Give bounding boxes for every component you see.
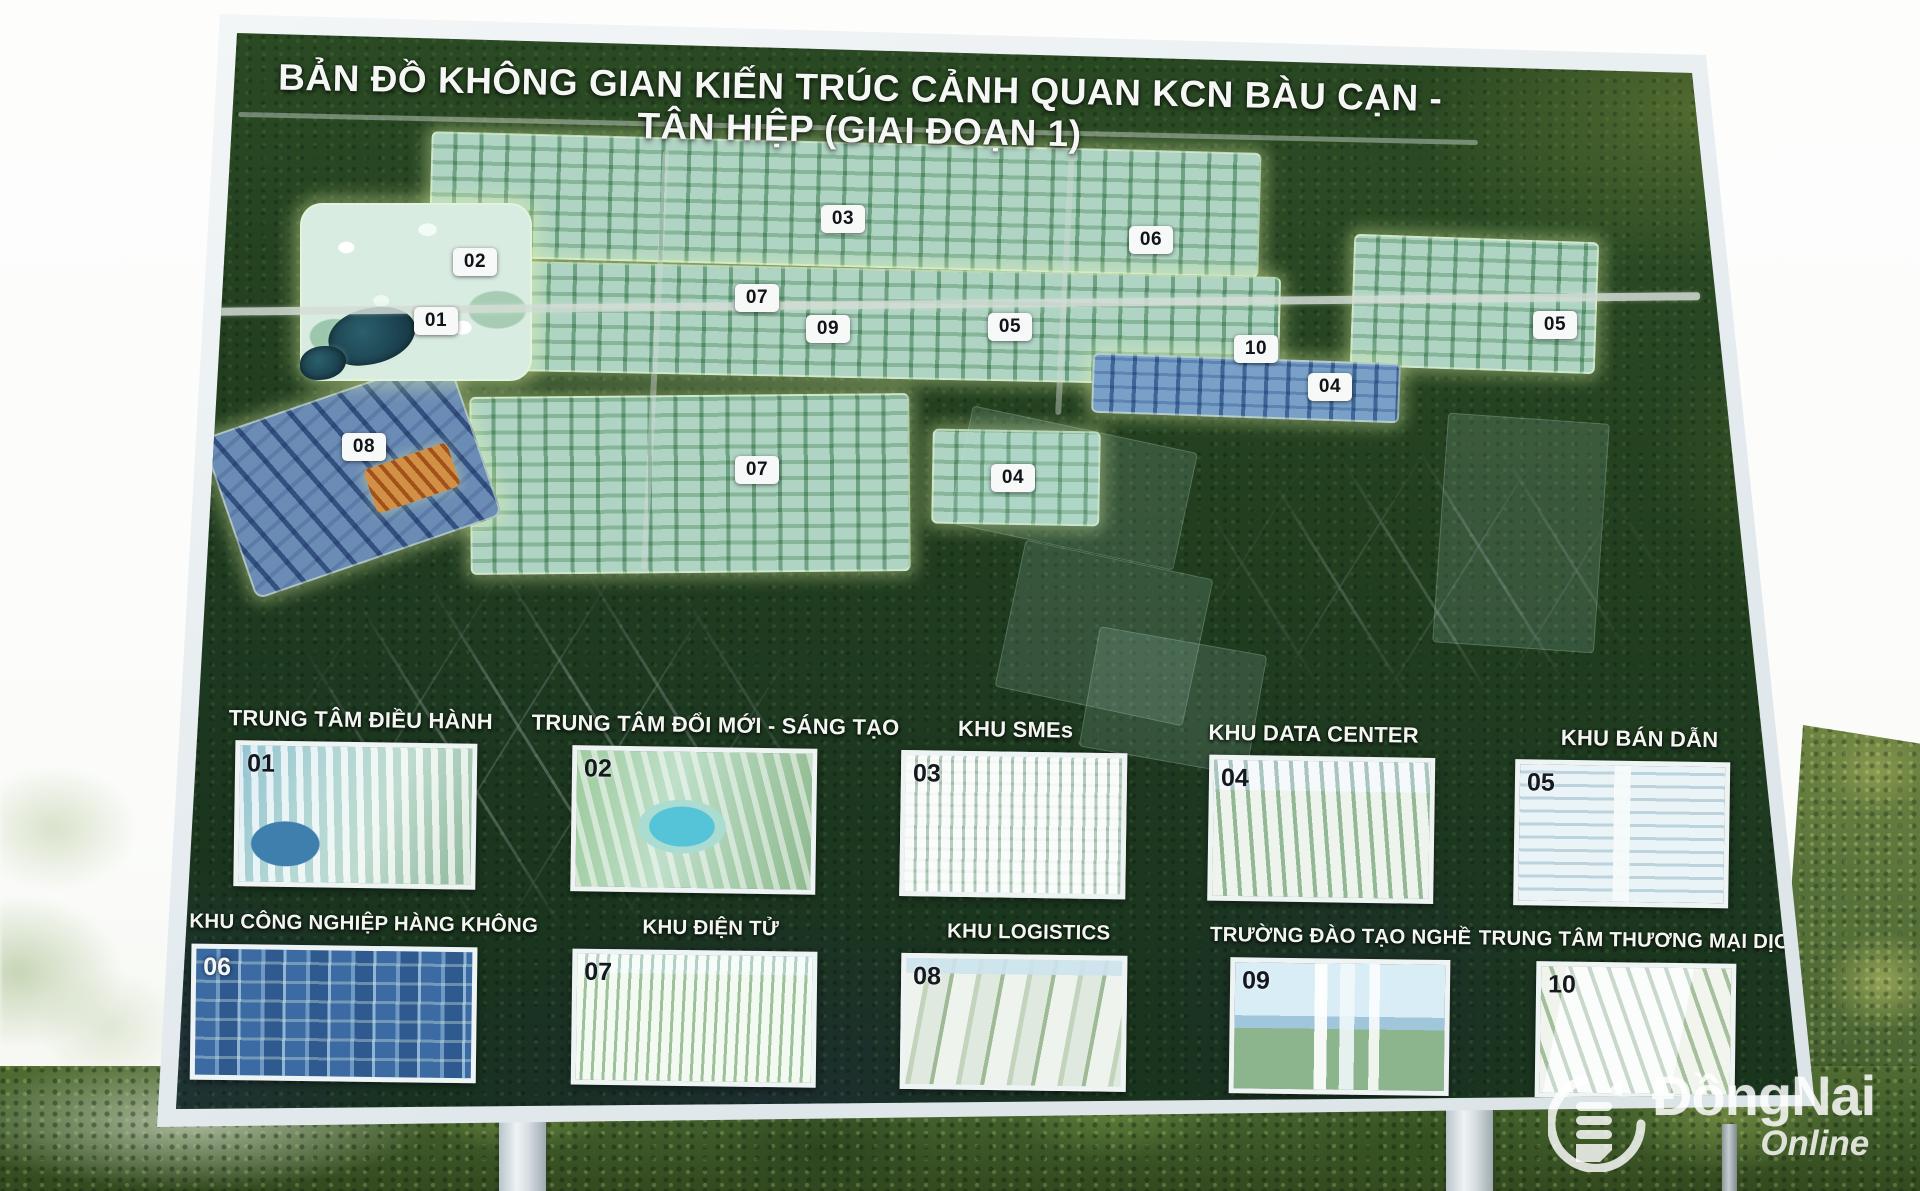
zone-label-02: TRUNG TÂM ĐỔI MỚI - SÁNG TẠO	[531, 707, 881, 744]
zone-thumb-number: 03	[913, 759, 941, 788]
zone-thumb-08: 08	[900, 953, 1128, 1092]
zone-thumb-number: 09	[1242, 966, 1270, 995]
map-marker-04: 04	[1308, 373, 1352, 401]
dongnai-logo-icon	[1548, 1072, 1648, 1172]
map-marker-10: 10	[1234, 335, 1278, 363]
map-marker-06: 06	[1129, 226, 1173, 254]
zone-thumb-number: 01	[247, 749, 275, 778]
zone-thumb-09: 09	[1229, 957, 1451, 1096]
dongnai-logo-text: ĐồngNai Online	[1652, 1068, 1875, 1161]
zone-thumb-number: 10	[1548, 970, 1576, 999]
watermark-brand: ĐồngNai	[1652, 1068, 1875, 1124]
zone-label-10: TRUNG TÂM THƯƠNG MẠI DỊCH VỤ	[1478, 922, 1788, 958]
park-cluster-east	[1350, 234, 1599, 374]
map-marker-04: 04	[991, 464, 1035, 492]
zone-thumb-06: 06	[190, 944, 478, 1084]
zone-thumb-07: 07	[571, 949, 818, 1088]
zone-label-07: KHU ĐIỆN TỬ	[531, 910, 891, 947]
map-marker-01: 01	[414, 307, 458, 335]
watermark-suffix: Online	[1652, 1126, 1875, 1161]
billboard-post-left	[499, 1112, 546, 1191]
zone-label-06: KHU CÔNG NGHIỆP HÀNG KHÔNG	[184, 905, 544, 942]
zone-thumb-number: 02	[584, 754, 612, 783]
zone-label-04: KHU DATA CENTER	[1138, 716, 1488, 753]
map-marker-03: 03	[821, 205, 865, 233]
zone-thumb-number: 04	[1221, 764, 1249, 793]
zone-label-01: TRUNG TÂM ĐIỀU HÀNH	[186, 701, 536, 738]
zone-label-09: TRƯỜNG ĐÀO TẠO NGHỀ	[1161, 918, 1521, 955]
foliage-left	[0, 720, 180, 1080]
dongnai-online-watermark: ĐồngNai Online	[1548, 1068, 1913, 1188]
map-marker-09: 09	[806, 315, 850, 343]
map-marker-07: 07	[735, 456, 779, 484]
zone-thumb-number: 05	[1527, 768, 1555, 797]
park-cluster-datacenter-strip	[1091, 353, 1401, 424]
zone-thumb-01: 01	[233, 740, 477, 890]
zone-thumb-03: 03	[899, 750, 1127, 899]
zone-thumb-02: 02	[570, 745, 817, 895]
zone-thumb-number: 08	[913, 962, 941, 991]
zone-thumb-number: 07	[584, 958, 612, 987]
map-marker-07: 07	[735, 284, 779, 312]
map-marker-08: 08	[342, 433, 386, 461]
map-marker-05: 05	[1533, 311, 1577, 339]
village-texture-southeast	[1150, 440, 1710, 740]
zone-thumb-number: 06	[203, 953, 231, 982]
zone-thumb-05: 05	[1513, 759, 1730, 908]
map-marker-05: 05	[988, 313, 1032, 341]
map-marker-02: 02	[453, 248, 497, 276]
park-cluster-south	[469, 393, 911, 575]
zone-label-08: KHU LOGISTICS	[849, 914, 1209, 951]
master-plan-board: 01020304040505060707080910 BẢN ĐỒ KHÔNG …	[0, 0, 1920, 1191]
zone-thumb-04: 04	[1207, 755, 1435, 904]
